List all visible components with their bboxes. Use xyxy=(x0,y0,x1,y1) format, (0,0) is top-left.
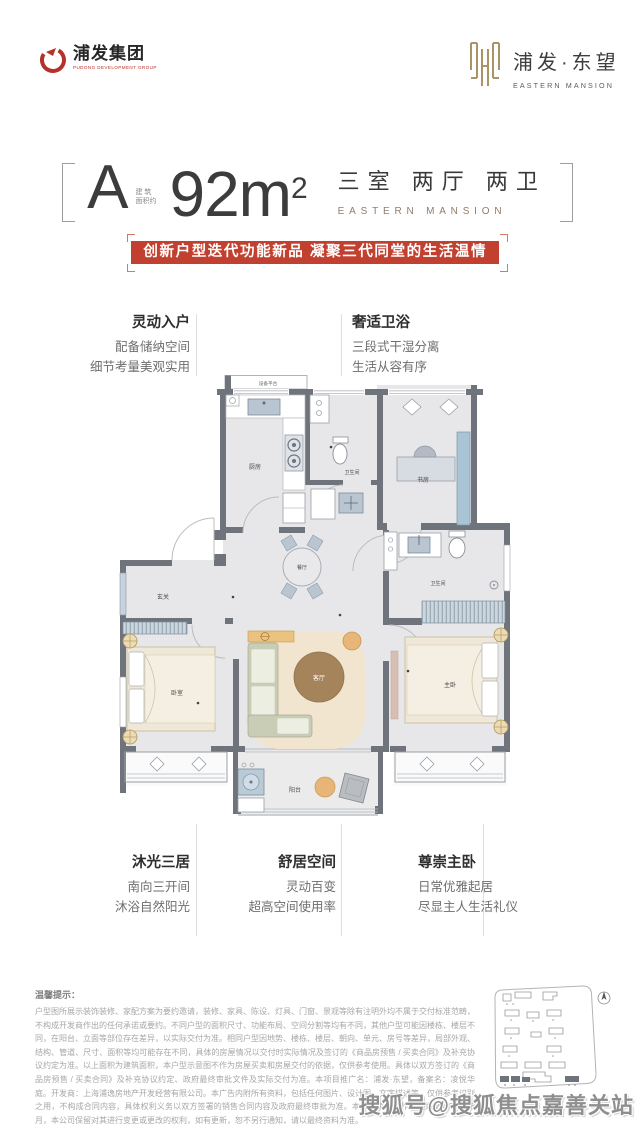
floor-plan: 设备平台 xyxy=(105,375,535,825)
project-logo: 浦发·东望 EASTERN MANSION xyxy=(468,40,620,95)
room-label: 厨房 xyxy=(249,463,261,471)
eastern-mansion-emblem-icon xyxy=(468,40,502,95)
bedroom-furniture xyxy=(123,634,215,744)
layout-summary: 三室 两厅 两卫 EASTERN MANSION xyxy=(338,164,546,217)
developer-name: 浦发集团 xyxy=(73,44,157,64)
grid-line xyxy=(196,314,197,376)
room-label: 阳台 xyxy=(289,786,301,794)
equipment-platform: 设备平台 xyxy=(225,376,307,390)
developer-logo: 浦发集团 PUDONG DEVELOPMENT GROUP xyxy=(38,44,157,81)
project-name: 浦发·东望 xyxy=(513,46,620,75)
area-value: 92m2 xyxy=(169,158,307,225)
unit-title-band: A 建 筑 面积约 92m2 三室 两厅 两卫 EASTERN MANSION xyxy=(0,158,635,225)
room-label: 卫生间 xyxy=(430,580,445,587)
grid-line xyxy=(196,824,197,936)
slogan-banner-row: 创新户型迭代功能新品 凝聚三代同堂的生活温情 xyxy=(0,241,635,264)
area-note: 建 筑 面积约 xyxy=(135,188,165,206)
poster-page: 浦发集团 PUDONG DEVELOPMENT GROUP 浦发·东望 EAST… xyxy=(0,0,635,1125)
callout-bathroom: 奢适卫浴 三段式干湿分离 生活从容有序 xyxy=(352,312,512,377)
disclaimer-title: 温馨提示： xyxy=(35,988,475,1001)
right-bracket xyxy=(560,163,573,222)
floor-plan-drawing: 设备平台 xyxy=(105,375,535,825)
compass-icon xyxy=(598,992,610,1005)
grid-line xyxy=(341,314,342,376)
master-bedroom-furniture xyxy=(405,628,508,734)
room-label: 餐厅 xyxy=(297,564,307,571)
room-label: 卧室 xyxy=(171,689,183,697)
svg-text:设备平台: 设备平台 xyxy=(259,380,278,387)
watermark: 搜狐号@搜狐焦点嘉善关站 xyxy=(359,1088,634,1120)
layout-cn: 三室 两厅 两卫 xyxy=(338,164,546,196)
slogan-banner: 创新户型迭代功能新品 凝聚三代同堂的生活温情 xyxy=(131,241,499,264)
unit-letter: A xyxy=(87,158,128,218)
developer-tagline: PUDONG DEVELOPMENT GROUP xyxy=(73,65,157,70)
room-floors xyxy=(120,385,510,814)
project-name-en: EASTERN MANSION xyxy=(513,81,620,90)
room-label: 主卧 xyxy=(444,681,456,689)
left-bracket xyxy=(62,163,75,222)
callout-bedrooms: 沐光三居 南向三开间 沐浴自然阳光 xyxy=(40,852,190,917)
room-label: 卫生间 xyxy=(344,469,359,476)
callout-space: 舒居空间 灵动百变 超高空间使用率 xyxy=(198,852,336,917)
room-label: 客厅 xyxy=(313,674,325,682)
site-plan xyxy=(487,984,613,1096)
layout-en: EASTERN MANSION xyxy=(338,206,546,217)
shoe-cabinet xyxy=(123,622,187,634)
callout-entry: 灵动入户 配备储纳空间 细节考量美观实用 xyxy=(50,312,190,377)
callout-master: 尊崇主卧 日常优雅起居 尽显主人生活礼仪 xyxy=(418,852,588,917)
pudong-group-icon xyxy=(38,44,68,81)
room-label: 玄关 xyxy=(157,593,169,601)
room-label: 书房 xyxy=(417,476,429,484)
grid-line xyxy=(341,824,342,936)
